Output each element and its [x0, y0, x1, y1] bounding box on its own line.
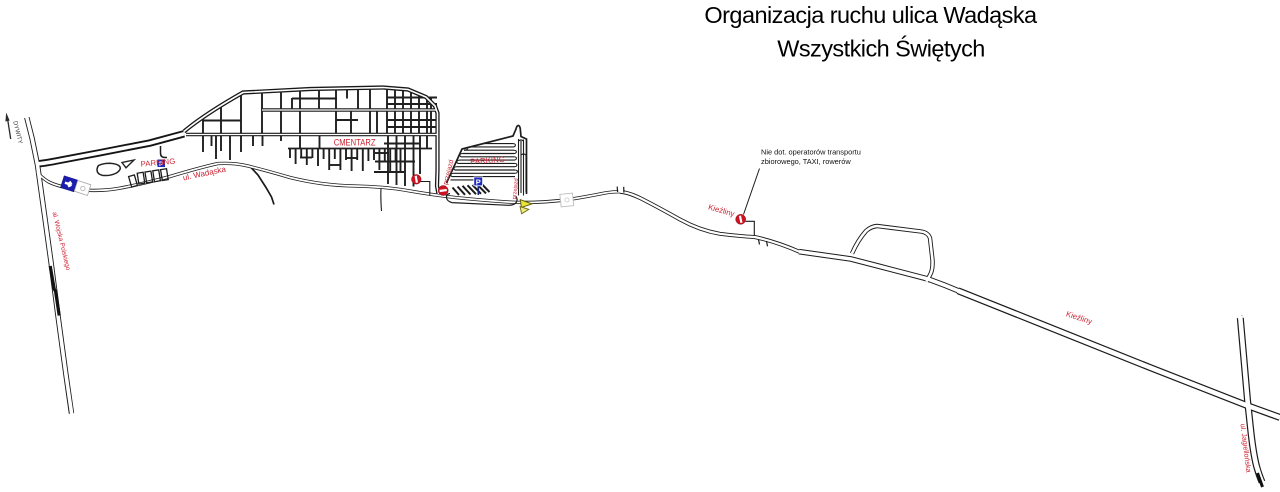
svg-text:P: P [476, 177, 481, 186]
svg-text:Organizacja ruchu ulica Wadąsk: Organizacja ruchu ulica Wadąska [704, 2, 1038, 28]
svg-text:Wszystkich Świętych: Wszystkich Świętych [777, 35, 985, 62]
svg-text:CMENTARZ: CMENTARZ [334, 137, 376, 147]
svg-text:zbiorowego, TAXI, rowerów: zbiorowego, TAXI, rowerów [761, 157, 851, 166]
svg-text:Nie dot. operatorów transportu: Nie dot. operatorów transportu [761, 148, 861, 157]
